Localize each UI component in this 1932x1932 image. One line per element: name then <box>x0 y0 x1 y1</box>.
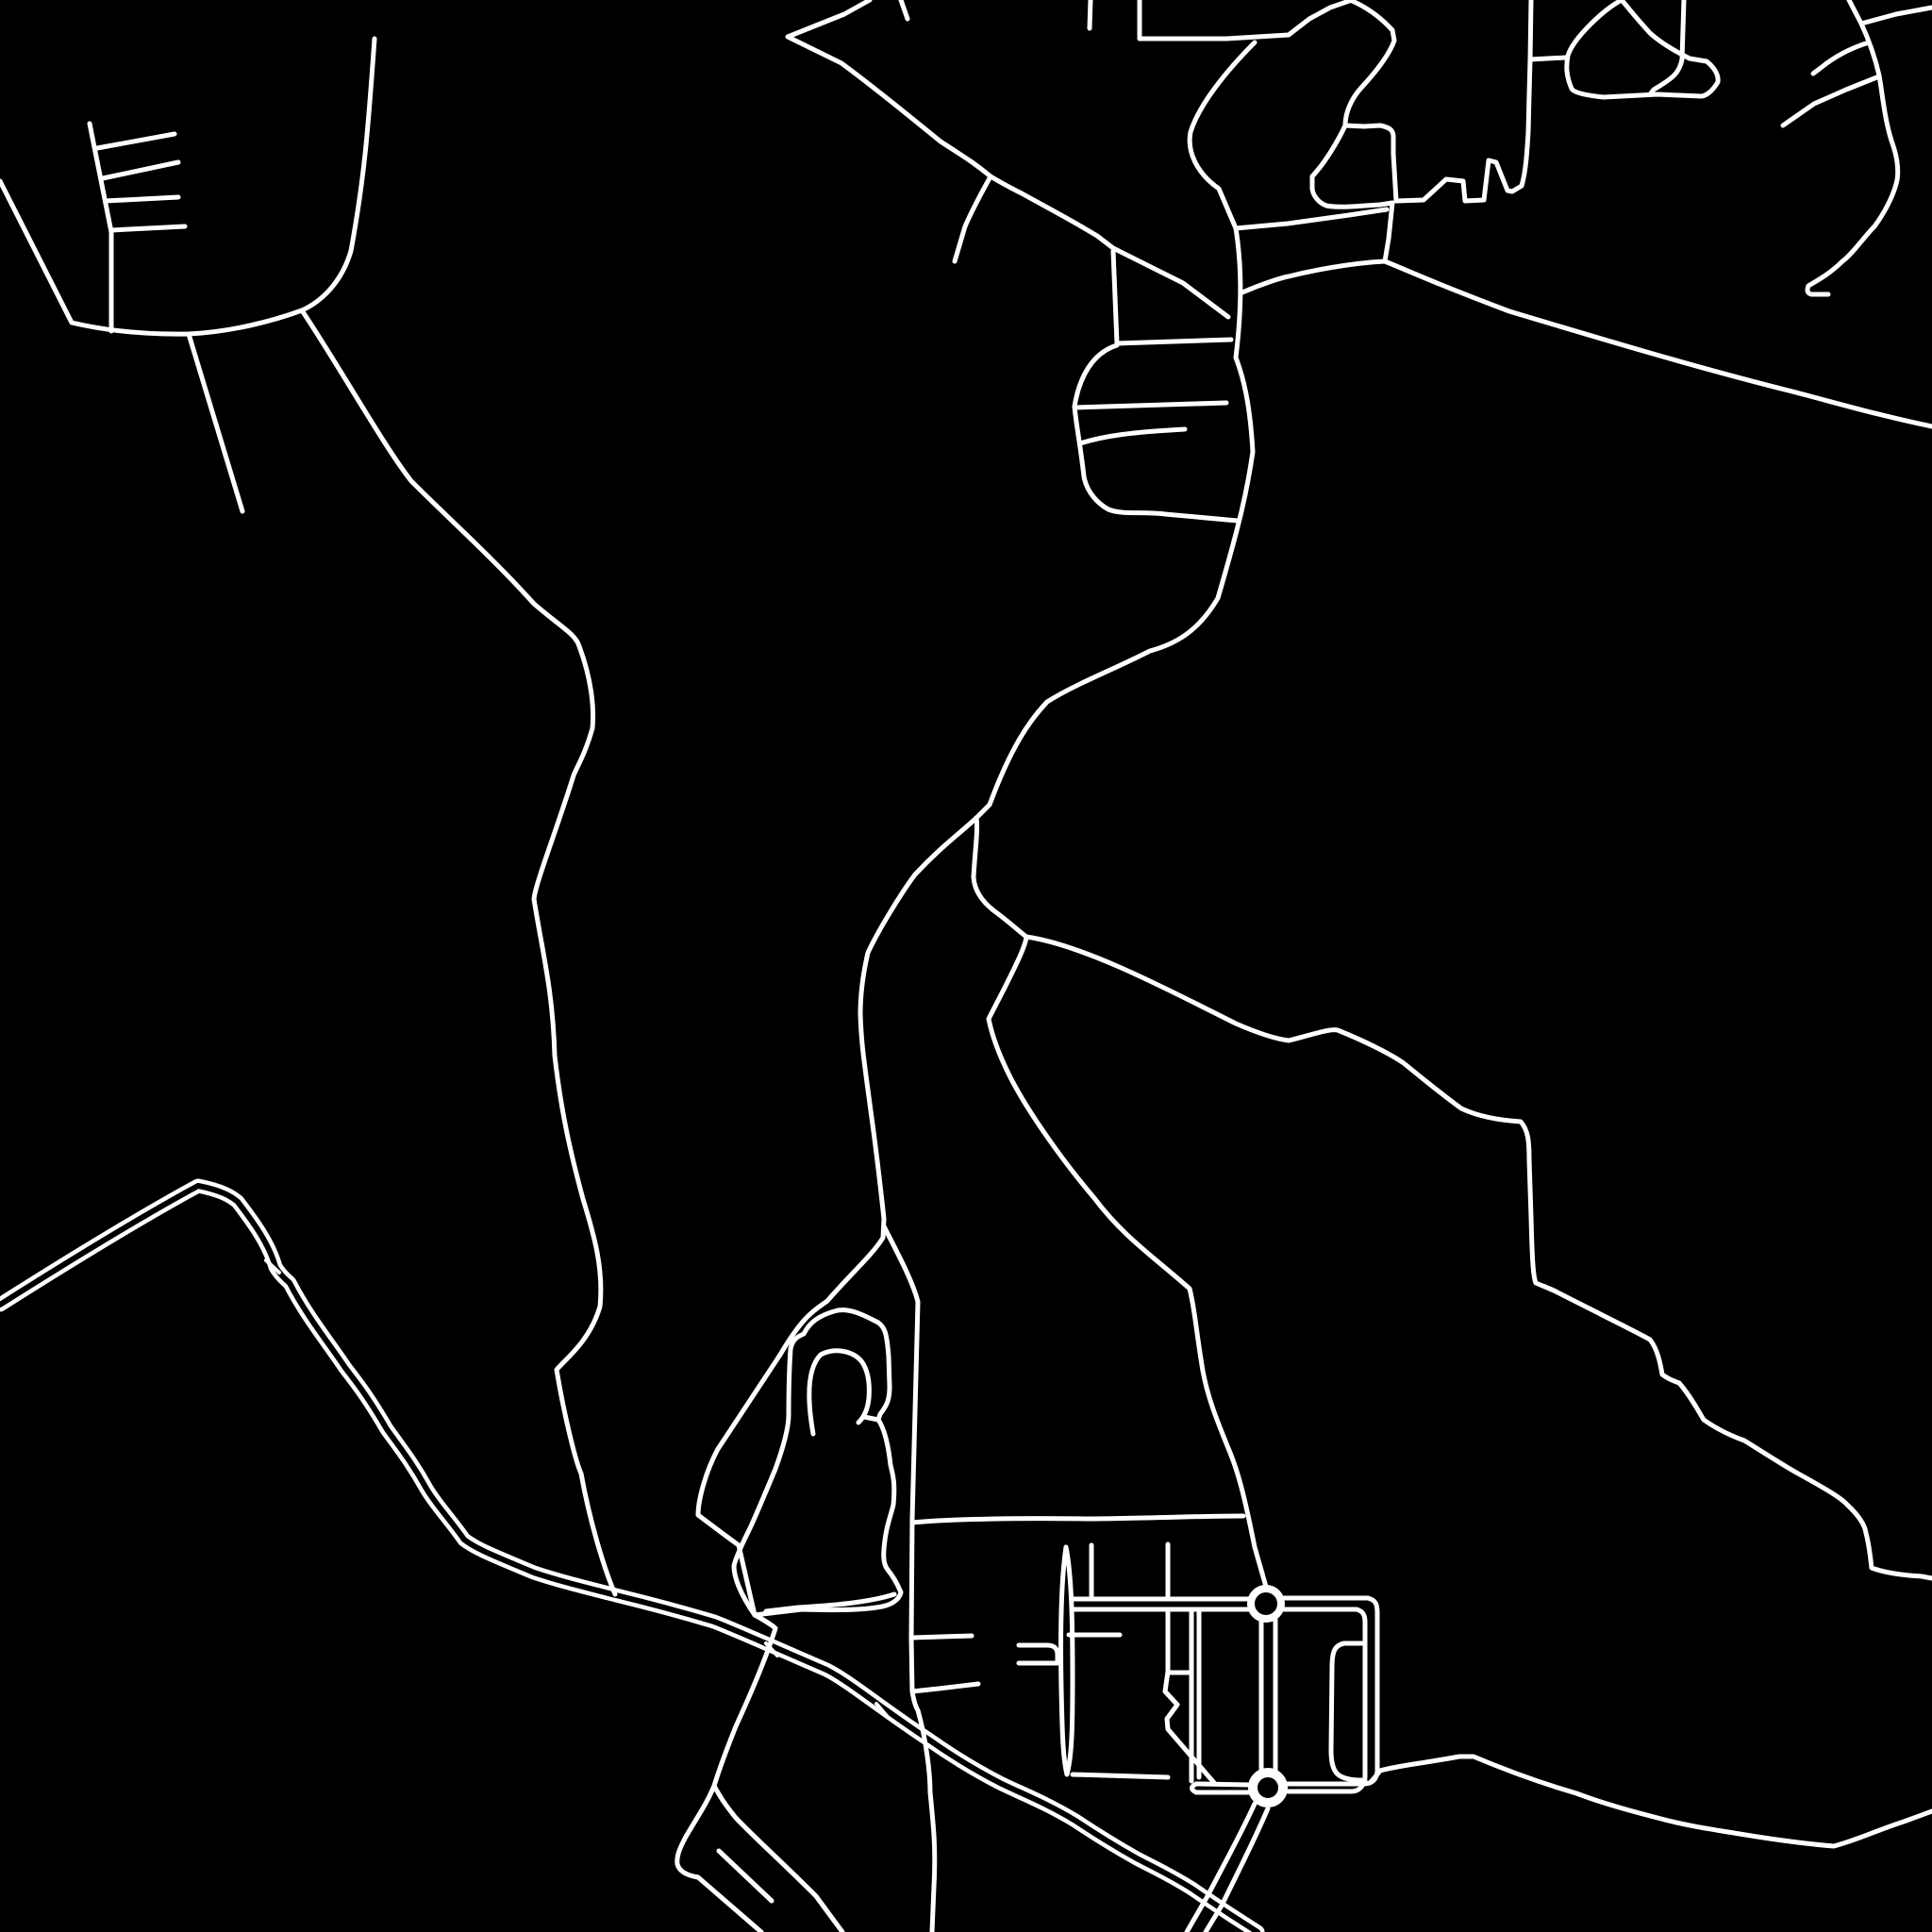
r2-west-stub-cap <box>1192 1784 1197 1792</box>
nw-comb-tooth-4 <box>111 226 185 230</box>
center-right-road <box>974 818 1266 1587</box>
top-center-road <box>788 0 1228 317</box>
top-center-stub <box>901 0 908 19</box>
east-loop-inner <box>1284 1609 1365 1791</box>
teeth-road <box>1396 0 1531 201</box>
inner-rounded-rect <box>1331 1643 1365 1780</box>
top-tick-1 <box>1090 0 1091 28</box>
horizontal-single-road <box>912 1516 1243 1523</box>
c-notch-link <box>864 1417 878 1420</box>
p-loop <box>1567 0 1718 97</box>
c-inner-hook <box>809 1351 870 1434</box>
vertical-road <box>884 1226 935 1932</box>
cross-wavy-road <box>1026 937 1932 1578</box>
ne-corner-branch <box>1861 8 1932 24</box>
sw-diag-3 <box>719 1851 772 1901</box>
hook-road <box>1345 0 1396 201</box>
ne-spur-short <box>1813 42 1869 74</box>
r2-west-stub-top <box>1196 1784 1250 1785</box>
stub-east-2 <box>912 1684 978 1691</box>
center-left-road <box>698 818 976 1615</box>
nw-comb-tooth-1 <box>97 134 175 148</box>
center-hang-spur <box>955 176 991 261</box>
pocket-wavy <box>1080 429 1185 443</box>
roundabout-upper <box>1251 1589 1281 1619</box>
long-se-road <box>302 310 615 1594</box>
pocket-h1 <box>1117 340 1231 343</box>
roads-layer <box>0 0 1932 1932</box>
sw-diag-1 <box>698 1877 761 1932</box>
top-horizontal-road <box>1140 0 1352 39</box>
pocket-vertical <box>1113 251 1117 343</box>
pocket-h2 <box>1075 403 1226 408</box>
east-wavy-road <box>976 42 1255 818</box>
east-branch <box>1236 209 1387 228</box>
nw-comb-tooth-2 <box>103 162 178 178</box>
nw-edge-road <box>0 181 302 334</box>
east-arc-road <box>1242 261 1932 426</box>
map-canvas <box>0 0 1932 1932</box>
stub-east-1 <box>912 1636 972 1638</box>
road-network-map <box>0 0 1932 1932</box>
small-c-shape <box>1019 1645 1058 1663</box>
nw-comb-tooth-3 <box>106 197 178 201</box>
sw-stem-road <box>677 1615 775 1877</box>
ne-spur-long <box>1783 76 1879 125</box>
roundabouts-layer <box>1251 1589 1283 1803</box>
teeth-spur <box>1530 58 1566 59</box>
hook-left-loop <box>1312 125 1392 207</box>
r2-east-wavy-road <box>1370 1757 1932 1846</box>
roundabout-lower <box>1253 1773 1283 1803</box>
nw-north-road <box>302 39 375 310</box>
nw-south-spur <box>189 334 242 511</box>
nw-comb-spine <box>90 124 111 331</box>
block-bottom <box>1073 1774 1168 1777</box>
ne-diagonal <box>1807 0 1898 294</box>
narrow-oval <box>1061 1547 1073 1774</box>
